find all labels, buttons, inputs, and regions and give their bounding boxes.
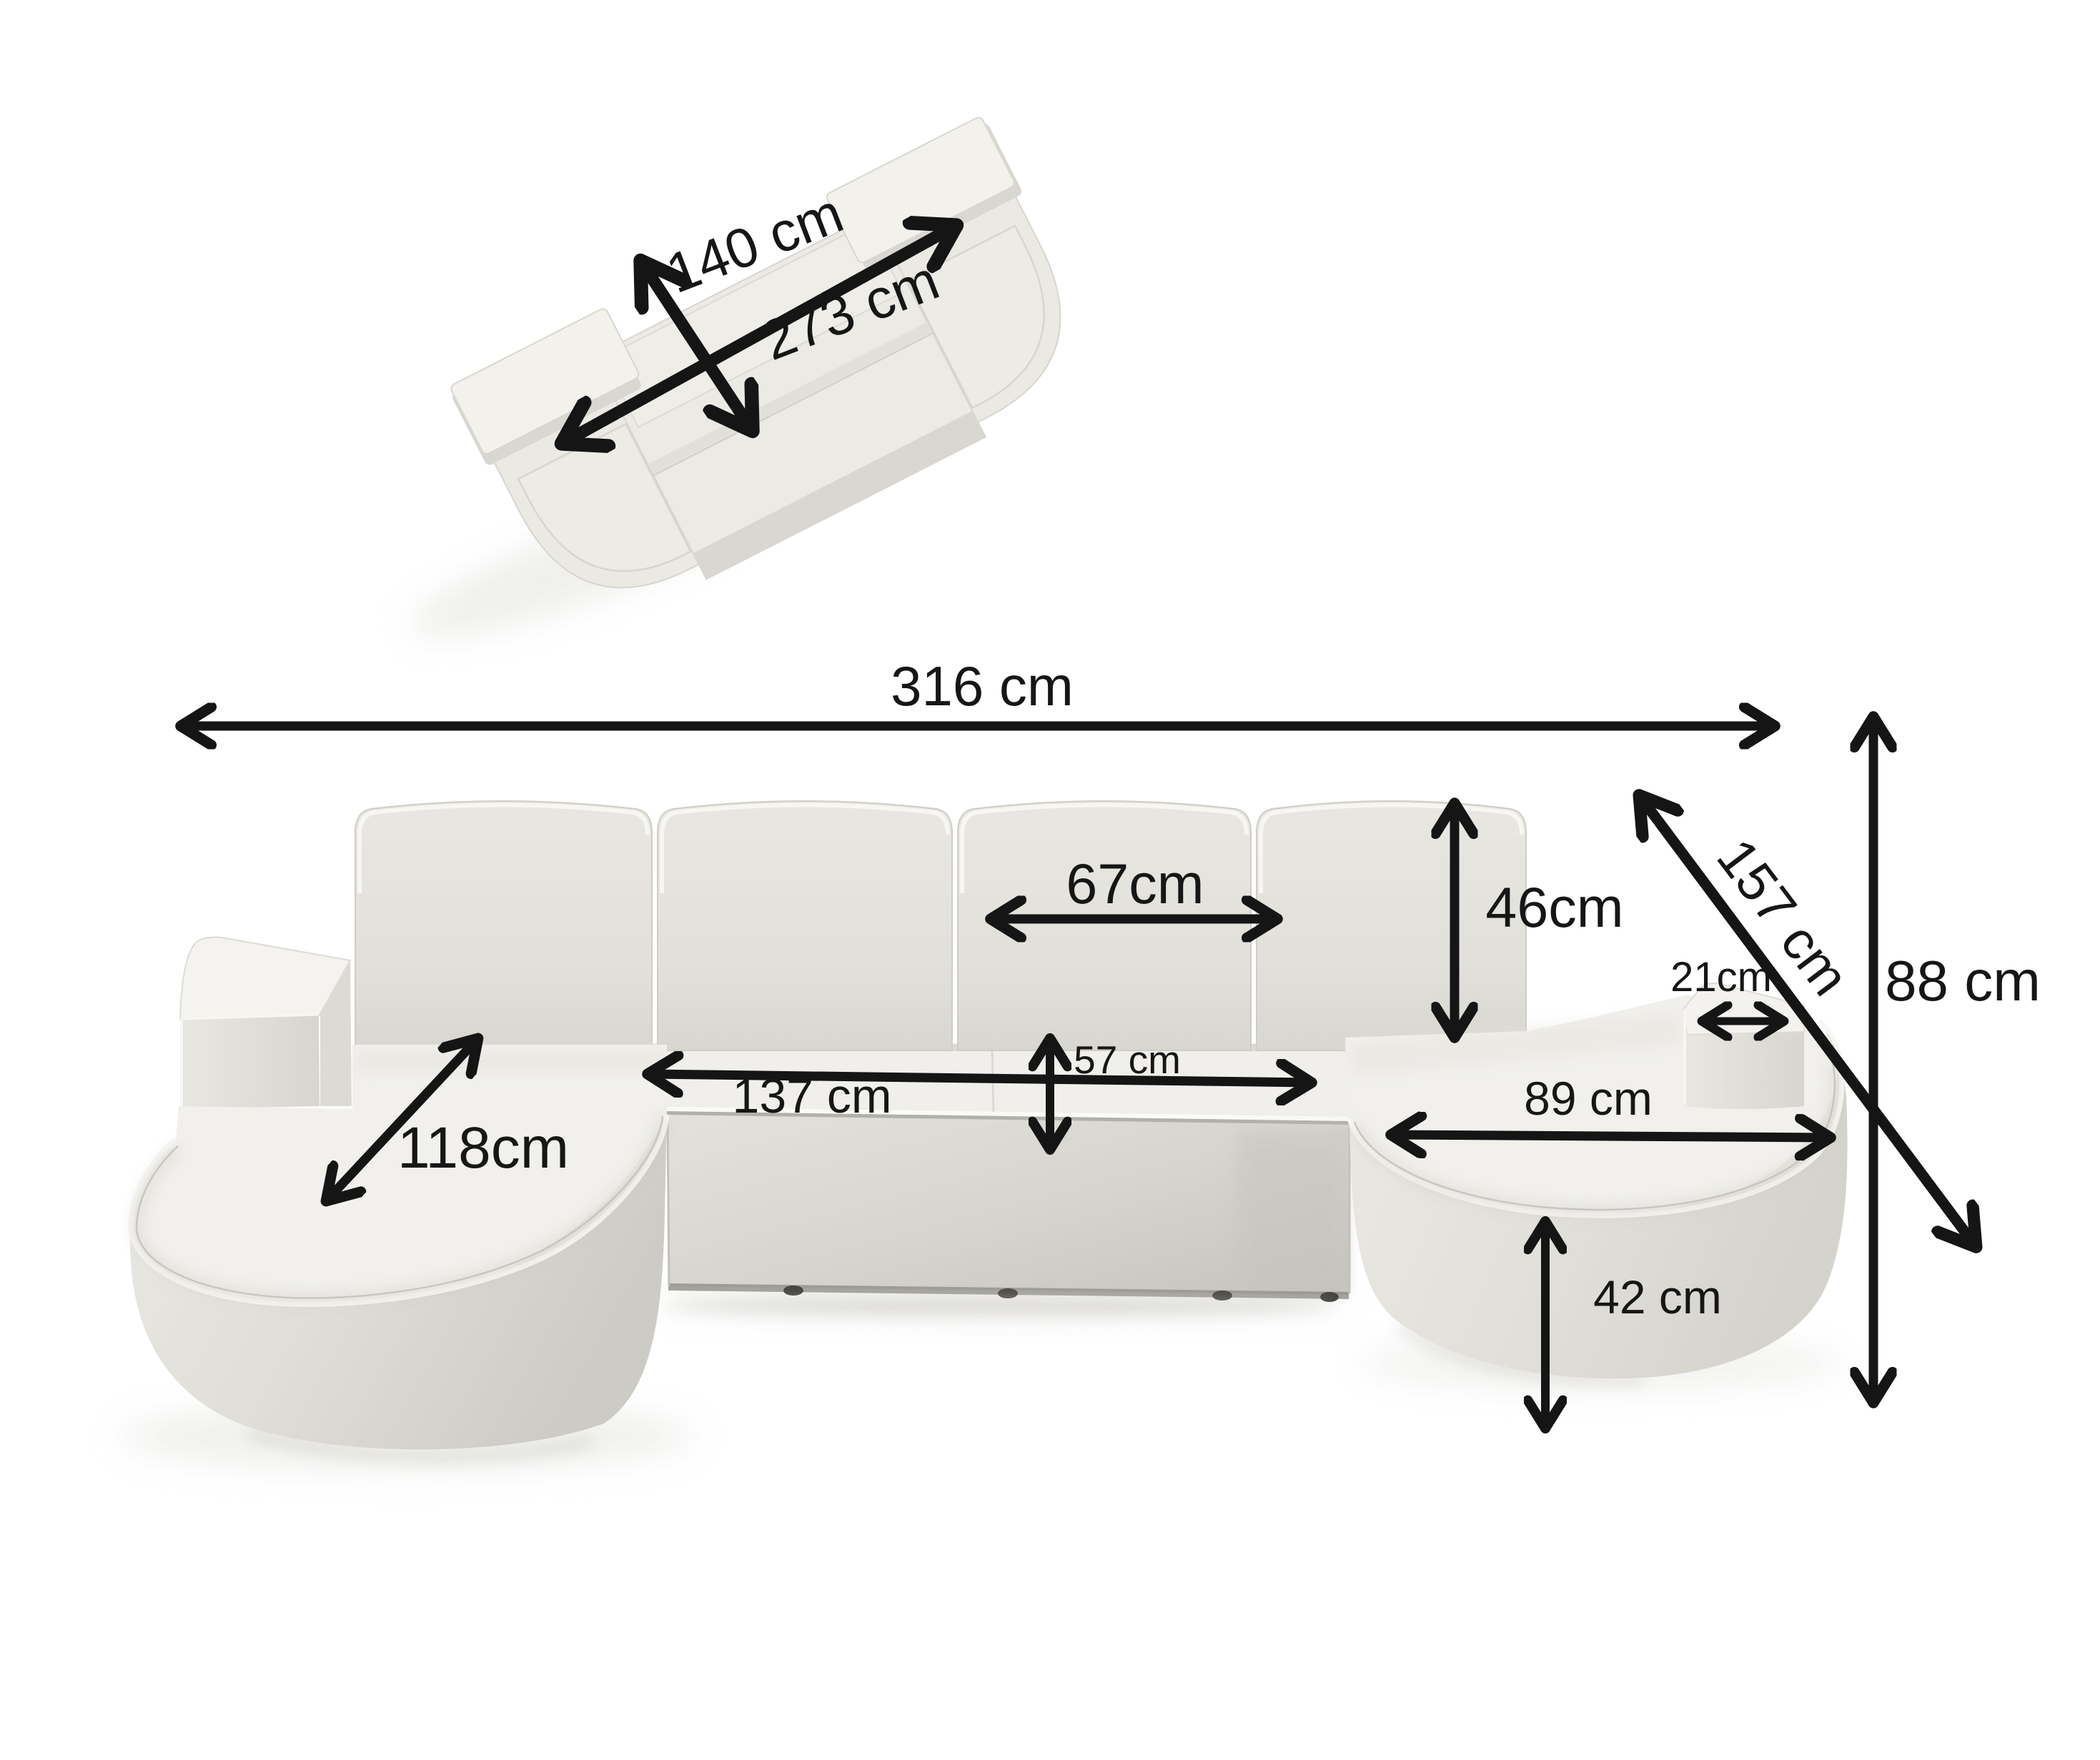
svg-text:88 cm: 88 cm [1885,949,2041,1013]
svg-text:137 cm: 137 cm [733,1069,892,1123]
svg-text:21cm: 21cm [1670,954,1772,1000]
svg-text:316 cm: 316 cm [891,655,1074,717]
svg-text:118cm: 118cm [397,1115,569,1180]
svg-text:42 cm: 42 cm [1593,1271,1722,1323]
svg-text:89 cm: 89 cm [1524,1072,1653,1125]
svg-text:46cm: 46cm [1485,875,1623,939]
svg-text:67cm: 67cm [1066,852,1204,915]
